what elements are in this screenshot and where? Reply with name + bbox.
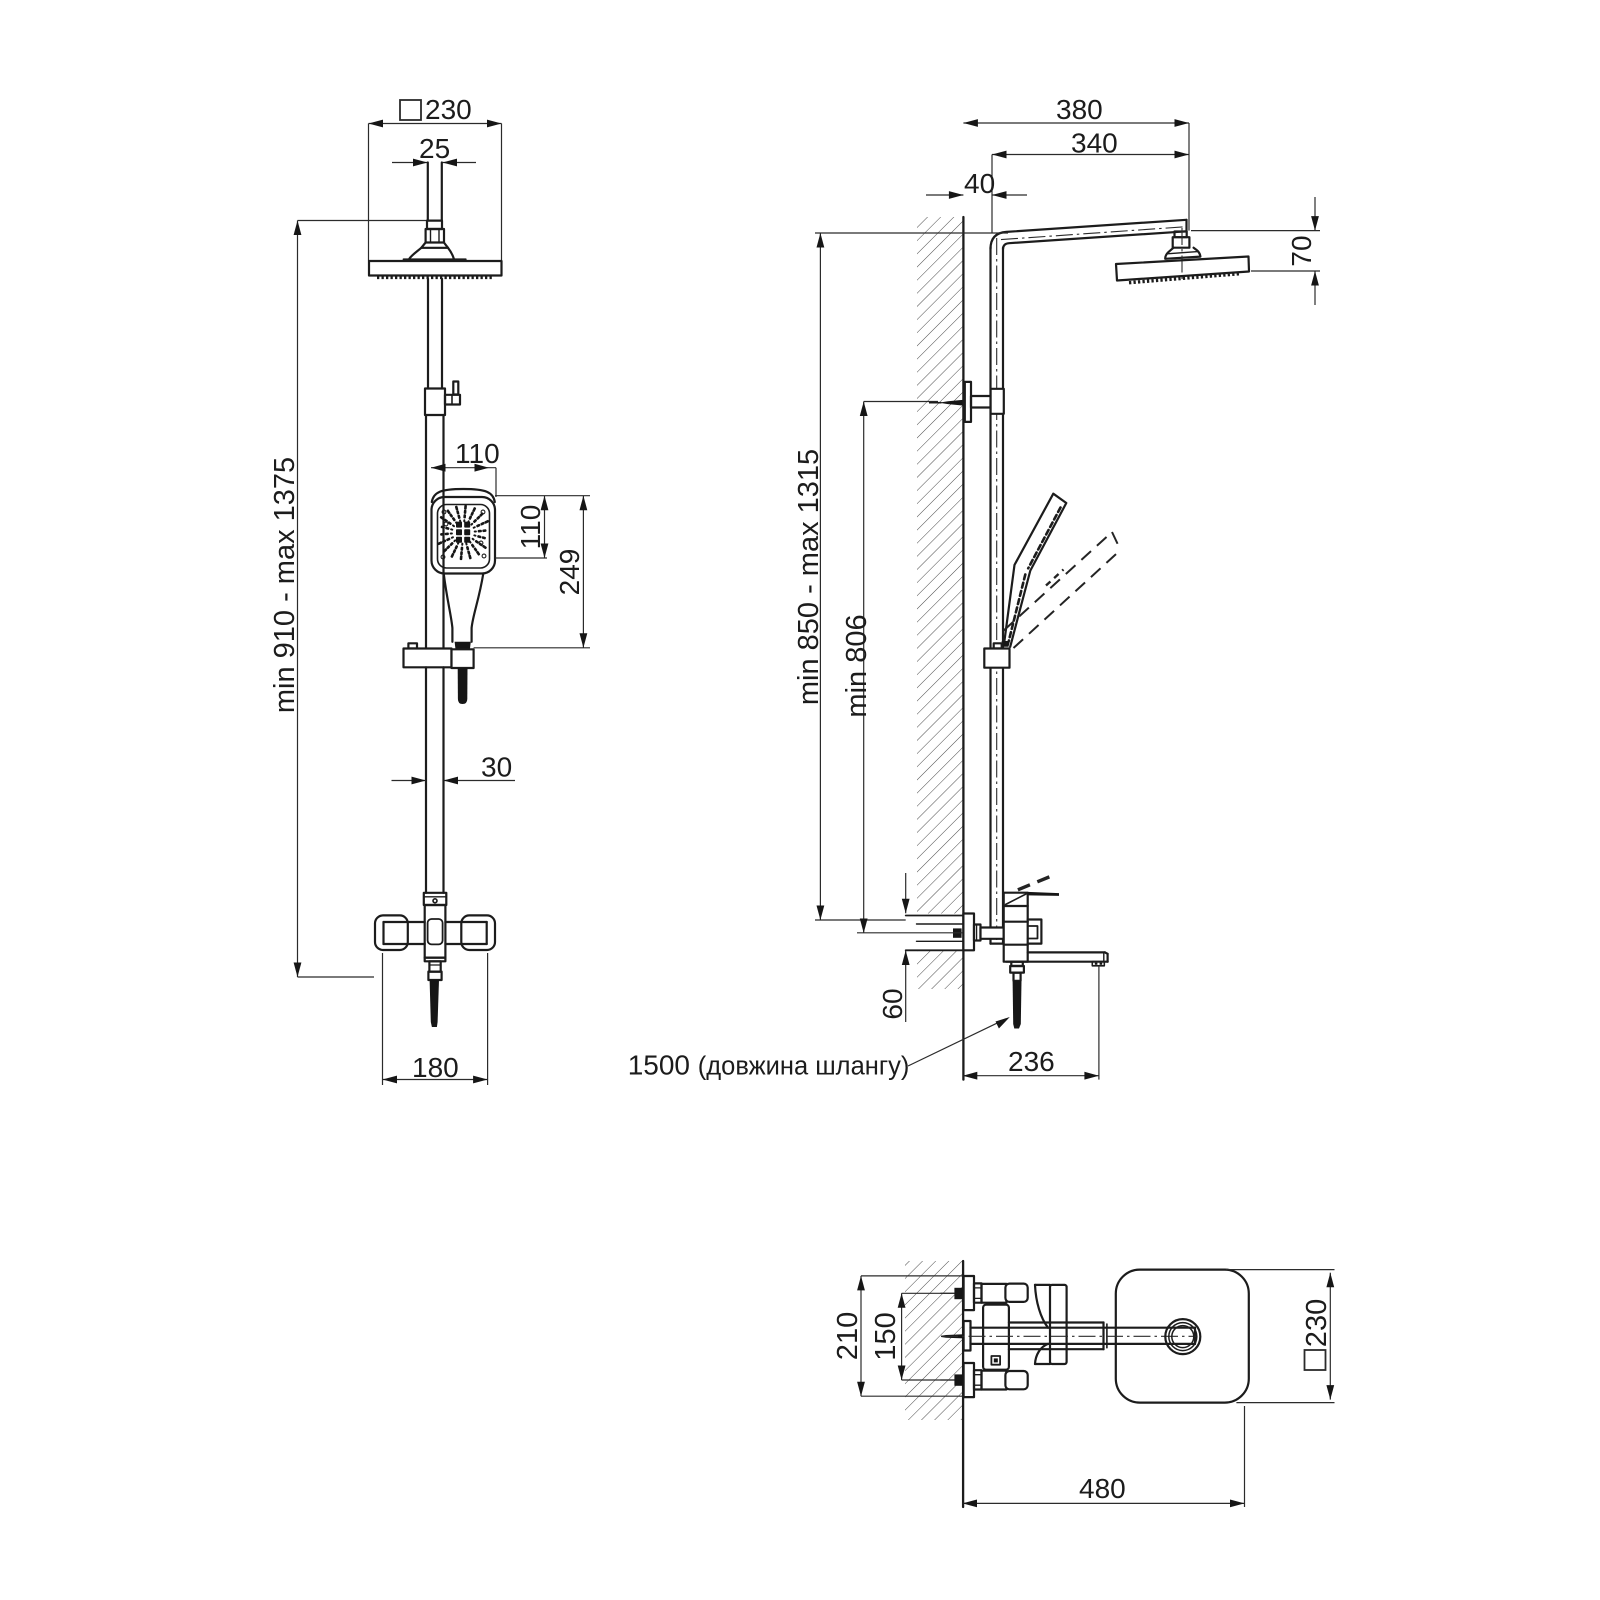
svg-text:min 806: min 806 [841, 614, 873, 717]
svg-text:230: 230 [1301, 1299, 1333, 1347]
svg-text:25: 25 [419, 133, 450, 164]
svg-text:40: 40 [964, 168, 995, 199]
svg-text:210: 210 [832, 1312, 864, 1360]
svg-text:180: 180 [412, 1052, 459, 1083]
svg-text:min 850 - max 1315: min 850 - max 1315 [793, 449, 825, 705]
svg-text:249: 249 [554, 549, 585, 596]
svg-text:150: 150 [870, 1312, 902, 1360]
svg-text:30: 30 [481, 752, 512, 783]
svg-text:380: 380 [1056, 94, 1103, 125]
svg-text:60: 60 [877, 988, 908, 1019]
svg-text:110: 110 [515, 505, 546, 550]
svg-text:1500 (довжина шлангу): 1500 (довжина шлангу) [628, 1050, 910, 1081]
svg-text:110: 110 [455, 438, 500, 469]
svg-text:340: 340 [1071, 128, 1118, 159]
svg-text:236: 236 [1008, 1046, 1055, 1077]
svg-text:230: 230 [425, 94, 472, 125]
svg-text:min 910 - max 1375: min 910 - max 1375 [269, 457, 301, 713]
svg-text:480: 480 [1079, 1473, 1126, 1504]
svg-text:70: 70 [1286, 235, 1317, 266]
